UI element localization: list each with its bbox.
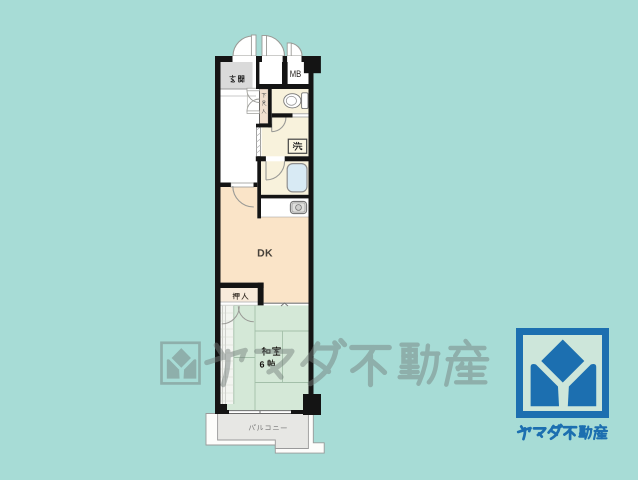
svg-text:DK: DK <box>257 247 273 259</box>
svg-text:6: 6 <box>259 359 264 369</box>
svg-text:MB: MB <box>290 69 302 80</box>
